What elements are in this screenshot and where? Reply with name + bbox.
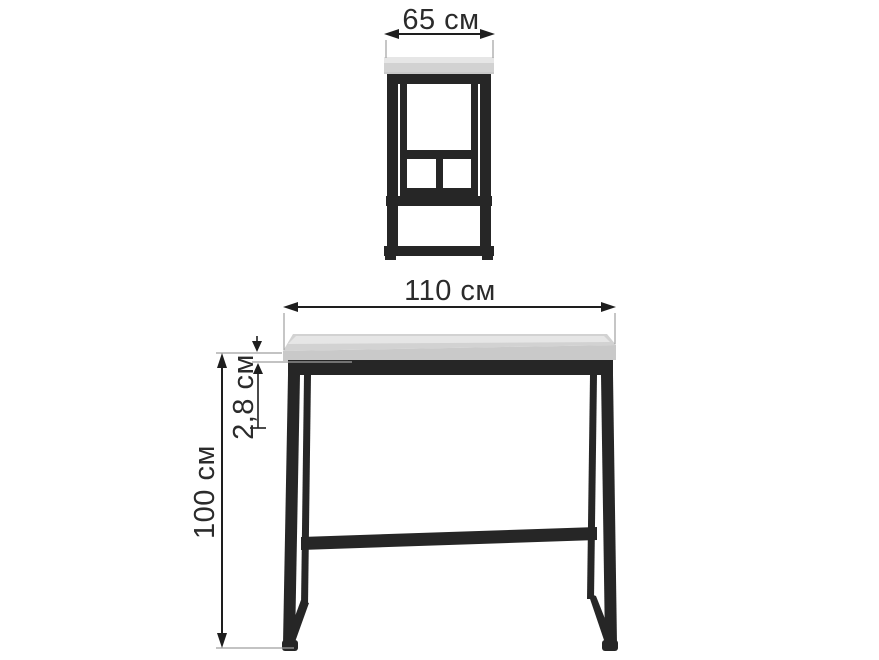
arrowhead-left-icon (283, 302, 298, 312)
side-left-leg (387, 74, 398, 256)
side-bottom-rail (384, 246, 494, 256)
dimension-label-thickness: 2,8 см (228, 354, 260, 440)
front-view-labels: 110 см 100 см 2,8 см (189, 275, 496, 539)
side-top-rail (387, 74, 491, 84)
front-view-figure: 110 см 100 см 2,8 см (189, 275, 618, 651)
front-right-inner-leg (587, 375, 597, 599)
side-upper-mid-rail (400, 150, 478, 159)
side-left-inner-post (400, 84, 407, 197)
side-extension-lines (386, 40, 493, 58)
side-left-foot (385, 256, 396, 260)
dimension-label-top-width: 65 см (402, 4, 479, 36)
front-right-foot (602, 640, 618, 651)
product-dimensions-diagram: 65 см (0, 0, 879, 660)
arrowhead-left-icon (384, 29, 399, 39)
side-center-divider (436, 159, 443, 190)
side-view-frame (384, 74, 494, 260)
arrowhead-down-icon (252, 341, 262, 352)
diagram-canvas: 65 см (0, 0, 879, 660)
front-right-outer-leg (601, 375, 617, 644)
arrowhead-right-icon (480, 29, 495, 39)
arrowhead-right-icon (601, 302, 616, 312)
side-view-figure: 65 см (384, 4, 495, 260)
side-view-labels: 65 см (402, 4, 479, 36)
dimension-label-height: 100 см (189, 445, 221, 539)
front-left-outer-leg (283, 375, 300, 644)
arrowhead-down-icon (217, 633, 227, 648)
dimension-label-front-width: 110 см (404, 275, 496, 307)
side-right-leg (480, 74, 491, 256)
side-full-width-rail (386, 196, 492, 206)
side-right-foot (482, 256, 493, 260)
arrowhead-up-icon (217, 353, 227, 368)
side-tabletop-highlight (384, 57, 494, 63)
side-right-inner-post (471, 84, 478, 197)
side-tabletop-bottom-edge (384, 72, 494, 74)
front-view-tabletop (283, 334, 616, 361)
front-view-frame (282, 360, 618, 651)
side-view-tabletop (384, 57, 494, 74)
front-left-inner-leg (301, 375, 311, 606)
side-lower-mid-rail (400, 188, 478, 196)
front-stretcher-bar (301, 527, 597, 550)
front-left-foot (282, 640, 298, 651)
